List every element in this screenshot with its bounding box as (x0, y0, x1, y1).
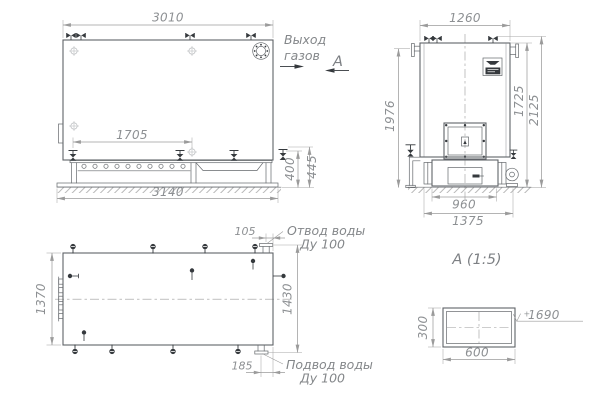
plan-valve-icon (202, 244, 207, 254)
fitting-icon (190, 268, 194, 280)
water-outlet-callout: Отвод воды Ду 100 (267, 223, 365, 252)
elevation-value: 1690 (528, 308, 560, 322)
safety-valve-icon (433, 36, 442, 43)
gas-outlet-label-line2: газов (284, 48, 320, 63)
left-flange-icon (412, 44, 421, 57)
plan-valve-icon (72, 345, 77, 355)
right-flange-icon (510, 44, 519, 58)
svg-text:3140: 3140 (152, 185, 184, 199)
plan-valve-icon (170, 345, 175, 355)
svg-text:1370: 1370 (34, 283, 48, 315)
plan-valve-icon (70, 244, 75, 254)
fitting-icon (68, 274, 79, 278)
dim-detail-height: 300 (416, 308, 441, 347)
safety-valve-icon (489, 36, 498, 43)
fitting-icon (82, 330, 86, 341)
svg-text:600: 600 (465, 346, 489, 360)
detail-title: А (1:5) (451, 252, 501, 268)
svg-text:1260: 1260 (449, 11, 481, 25)
fan-icon (506, 168, 519, 186)
section-a-arrow: А (325, 54, 349, 73)
front-view: 3010 1705 3140 400 445 (57, 11, 319, 204)
dim-front-top-width: 3010 (63, 11, 273, 39)
water-inlet-callout: Подвод воды Ду 100 (262, 354, 373, 386)
blowdown-pipe (406, 145, 421, 188)
svg-text:1725: 1725 (512, 85, 526, 117)
svg-text:185: 185 (232, 360, 253, 373)
water-inlet-stub (255, 345, 268, 354)
water-outlet-label-line2: Ду 100 (299, 237, 345, 252)
base-frame (57, 161, 278, 188)
gas-flow-arrow-icon (280, 64, 304, 69)
svg-text:445: 445 (305, 155, 319, 179)
elevation-callout: + 1690 (513, 308, 583, 322)
plan-valve-icon (109, 345, 114, 355)
svg-text:960: 960 (452, 198, 476, 212)
svg-text:3010: 3010 (152, 11, 184, 25)
svg-text:1375: 1375 (452, 214, 484, 228)
safety-valve-icon (77, 33, 86, 40)
safety-valve-icon (247, 33, 256, 40)
plan-valve-icon (150, 244, 155, 254)
dim-detail-width: 600 (443, 346, 515, 365)
dim-grate-length: 1705 (73, 128, 192, 148)
safety-valve-icon (67, 33, 76, 40)
water-outlet-stub (260, 244, 273, 254)
gas-outlet-flange-icon (253, 43, 270, 60)
detail-a-view: А (1:5) 300 600 + 1690 (416, 252, 583, 364)
ash-trough (196, 163, 263, 171)
dim-outlet-offset: 105 (235, 225, 286, 251)
plan-valve-icon (235, 345, 240, 355)
fitting-icon (251, 259, 255, 270)
svg-text:400: 400 (283, 157, 297, 181)
water-inlet-label-line2: Ду 100 (299, 371, 345, 386)
gas-outlet-label-line1: Выход (284, 32, 326, 47)
chain-grate (82, 164, 185, 168)
side-bracket (59, 124, 64, 143)
fitting-icon (273, 274, 286, 278)
section-letter: А (332, 54, 343, 70)
cross-marker-icon (187, 147, 197, 157)
gas-outlet-annotation: Выход газов А (280, 32, 349, 73)
dim-flue-height: 1976 (383, 49, 410, 188)
svg-text:1705: 1705 (116, 128, 148, 142)
svg-text:1430: 1430 (281, 283, 295, 315)
svg-text:300: 300 (416, 316, 430, 340)
svg-text:1976: 1976 (383, 100, 397, 132)
side-view: 1260 1976 1725 2125 960 1375 (383, 11, 546, 228)
ground-line (408, 187, 531, 193)
safety-valve-icon (186, 33, 195, 40)
plan-view: 1370 1430 105 185 Отвод воды Ду (34, 223, 373, 386)
cross-marker-icon (69, 46, 79, 56)
plan-valve-icon (252, 244, 257, 254)
nameplate (483, 58, 502, 76)
drain-valve-icon (230, 151, 239, 162)
cross-marker-icon (69, 121, 79, 131)
safety-valve-icon (425, 36, 434, 43)
drain-valve-icon (510, 150, 518, 159)
ash-door (448, 168, 484, 185)
drain-valve-icon (69, 151, 78, 162)
drawing-canvas: 3010 1705 3140 400 445 Выход газов (0, 0, 600, 400)
drain-valve-icon (176, 151, 185, 162)
cross-marker-icon (187, 46, 197, 56)
svg-text:2125: 2125 (527, 94, 541, 126)
svg-text:105: 105 (235, 225, 256, 238)
leader-check-icon (513, 314, 520, 322)
furnace-base (424, 160, 518, 187)
technical-drawing: 3010 1705 3140 400 445 Выход газов (0, 0, 600, 400)
